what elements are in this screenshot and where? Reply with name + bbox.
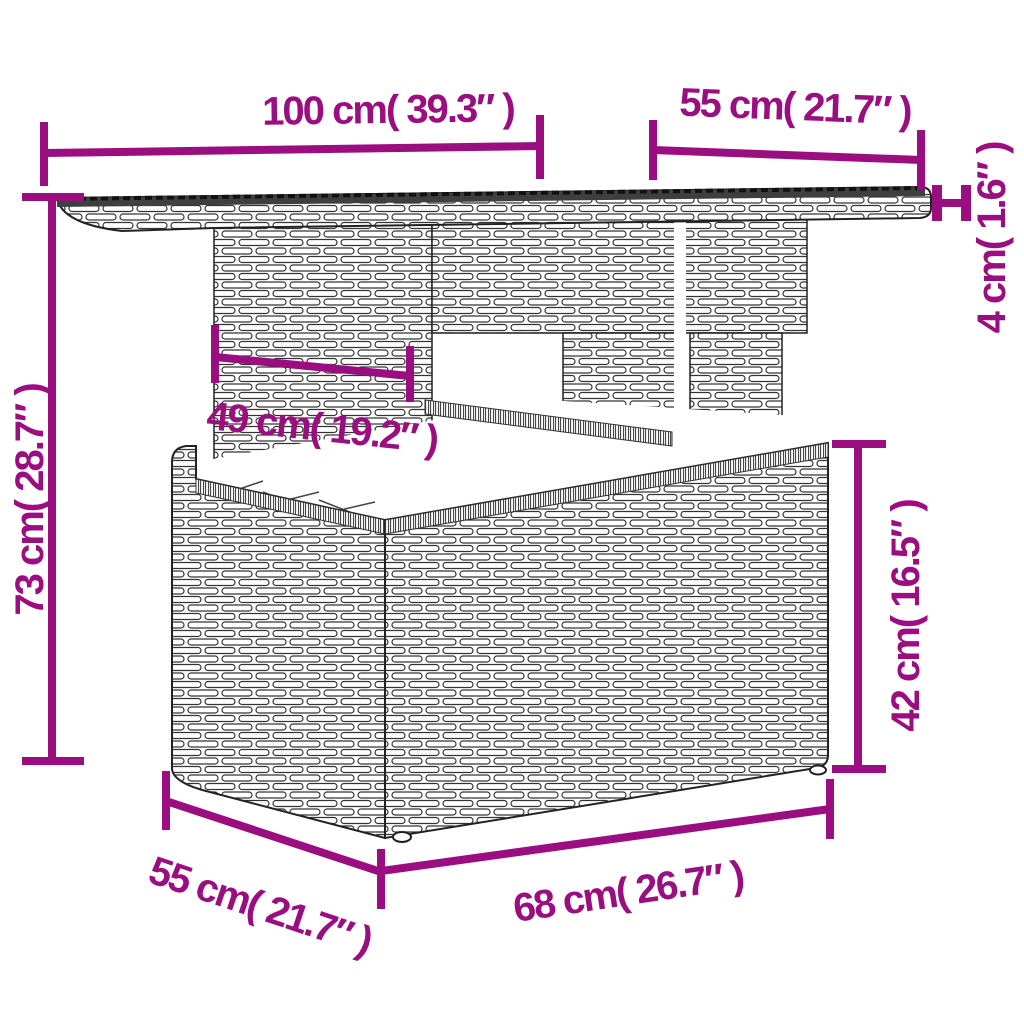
dimension-diagram: 100 cm( 39.3″ ) 55 cm( 21.7″ ) 4 cm( 1.6… — [0, 0, 1024, 1024]
dim-top-thickness-bracket — [937, 185, 966, 221]
dim-top-width-label: 100 cm( 39.3″ ) — [262, 88, 514, 132]
dim-overall-height-label: 73 cm( 28.7″ ) — [10, 384, 50, 615]
dim-base-height-line — [832, 444, 886, 769]
dim-base-height-label: 42 cm( 16.5″ ) — [886, 500, 926, 731]
dim-top-depth-label: 55 cm( 21.7″ ) — [679, 83, 912, 132]
dim-top-thickness-label: 4 cm( 1.6″ ) — [972, 143, 1012, 334]
